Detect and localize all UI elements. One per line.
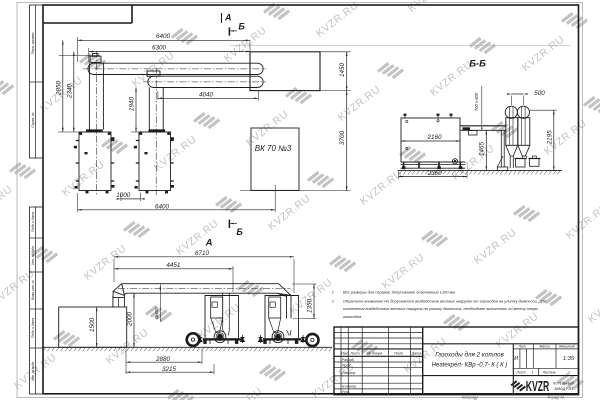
svg-text:Подп. и дата: Подп. и дата <box>31 212 35 232</box>
svg-text:6400: 6400 <box>155 203 170 210</box>
svg-text:1465: 1465 <box>479 142 486 157</box>
svg-text:Heatexpert- КВр -0,7- К ( К ): Heatexpert- КВр -0,7- К ( К ) <box>432 363 508 369</box>
svg-text:Копировал: Копировал <box>462 396 479 400</box>
svg-text:Б: Б <box>236 227 243 237</box>
svg-text:КОТЕЛЬНЫЙ: КОТЕЛЬНЫЙ <box>553 382 574 386</box>
svg-text:1940: 1940 <box>129 97 136 112</box>
svg-text:4451: 4451 <box>166 262 180 269</box>
svg-text:газоходов.: газоходов. <box>343 314 362 319</box>
svg-text:KVZR: KVZR <box>526 378 550 395</box>
svg-text:Обратите внимание! Не допускае: Обратите внимание! Не допускается воздей… <box>343 298 546 303</box>
svg-text:4040: 4040 <box>199 92 214 99</box>
svg-text:Разраб.: Разраб. <box>342 358 355 362</box>
svg-text:700 x 600: 700 x 600 <box>474 92 479 111</box>
svg-text:6300: 6300 <box>152 45 167 52</box>
svg-text:2880: 2880 <box>155 356 171 363</box>
svg-text:Т.контр.: Т.контр. <box>342 371 357 375</box>
svg-text:Перв. примен.: Перв. примен. <box>31 32 35 55</box>
svg-text:2195: 2195 <box>546 130 553 146</box>
svg-text:Листов: Листов <box>541 370 555 374</box>
svg-text:6710: 6710 <box>195 250 210 257</box>
svg-text:1: 1 <box>332 289 334 294</box>
svg-text:2360: 2360 <box>427 170 443 177</box>
svg-text:Лит.: Лит. <box>518 344 527 348</box>
svg-text:500: 500 <box>534 90 545 97</box>
svg-text:1:35: 1:35 <box>563 356 575 362</box>
svg-text:3700: 3700 <box>339 131 346 146</box>
svg-text:2850: 2850 <box>55 81 62 97</box>
svg-text:Утв.: Утв. <box>342 390 350 394</box>
svg-text:Пров.: Пров. <box>342 364 351 368</box>
svg-text:Взам. инв. №: Взам. инв. № <box>31 280 35 300</box>
svg-text:3215: 3215 <box>162 366 177 373</box>
svg-text:Н.контр.: Н.контр. <box>342 384 357 388</box>
svg-text:1500: 1500 <box>89 318 96 333</box>
svg-text:Б-Б: Б-Б <box>469 58 486 69</box>
svg-text:А: А <box>224 12 232 22</box>
svg-text:2160: 2160 <box>426 134 442 141</box>
svg-text:Лист: Лист <box>515 370 525 374</box>
svg-text:Газоходы для 2 котлов: Газоходы для 2 котлов <box>435 350 504 358</box>
svg-text:1: 1 <box>532 370 534 374</box>
svg-text:Дата: Дата <box>411 352 421 356</box>
svg-text:1000: 1000 <box>116 192 131 199</box>
svg-text:Б: Б <box>238 21 245 31</box>
svg-text:Все размеры для справок, допус: Все размеры для справок, допускаемое отк… <box>343 289 456 294</box>
svg-text:Формат А3: Формат А3 <box>548 396 565 400</box>
svg-text:И: И <box>514 356 518 362</box>
svg-text:ЗАВОД РЭП: ЗАВОД РЭП <box>554 387 573 391</box>
svg-text:2000: 2000 <box>127 312 134 328</box>
svg-text:исключения воздействия весовых: исключения воздействия весовых нагрузок … <box>343 306 538 311</box>
svg-text:Изм: Изм <box>341 352 348 356</box>
svg-text:1450: 1450 <box>339 63 346 78</box>
svg-text:ВК 70 №3: ВК 70 №3 <box>255 144 292 153</box>
svg-text:Лист: Лист <box>349 352 359 356</box>
svg-text:Инв. № подл.: Инв. № подл. <box>31 361 35 381</box>
svg-text:2340: 2340 <box>66 84 73 100</box>
svg-text:Инв. № дубл.: Инв. № дубл. <box>31 245 35 265</box>
svg-text:Подп. и дата: Подп. и дата <box>31 318 35 338</box>
svg-text:6400: 6400 <box>156 33 171 40</box>
svg-text:Подп.: Подп. <box>394 352 404 356</box>
svg-text:1350: 1350 <box>307 299 314 314</box>
svg-text:Справ. №: Справ. № <box>31 112 35 128</box>
svg-text:ф400: ф400 <box>154 307 159 319</box>
svg-text:Масса: Масса <box>539 344 549 348</box>
svg-text:№ докум.: № докум. <box>367 352 383 356</box>
svg-text:Масштаб: Масштаб <box>559 344 575 348</box>
svg-text:1: 1 <box>568 370 570 374</box>
svg-text:А: А <box>205 237 213 248</box>
